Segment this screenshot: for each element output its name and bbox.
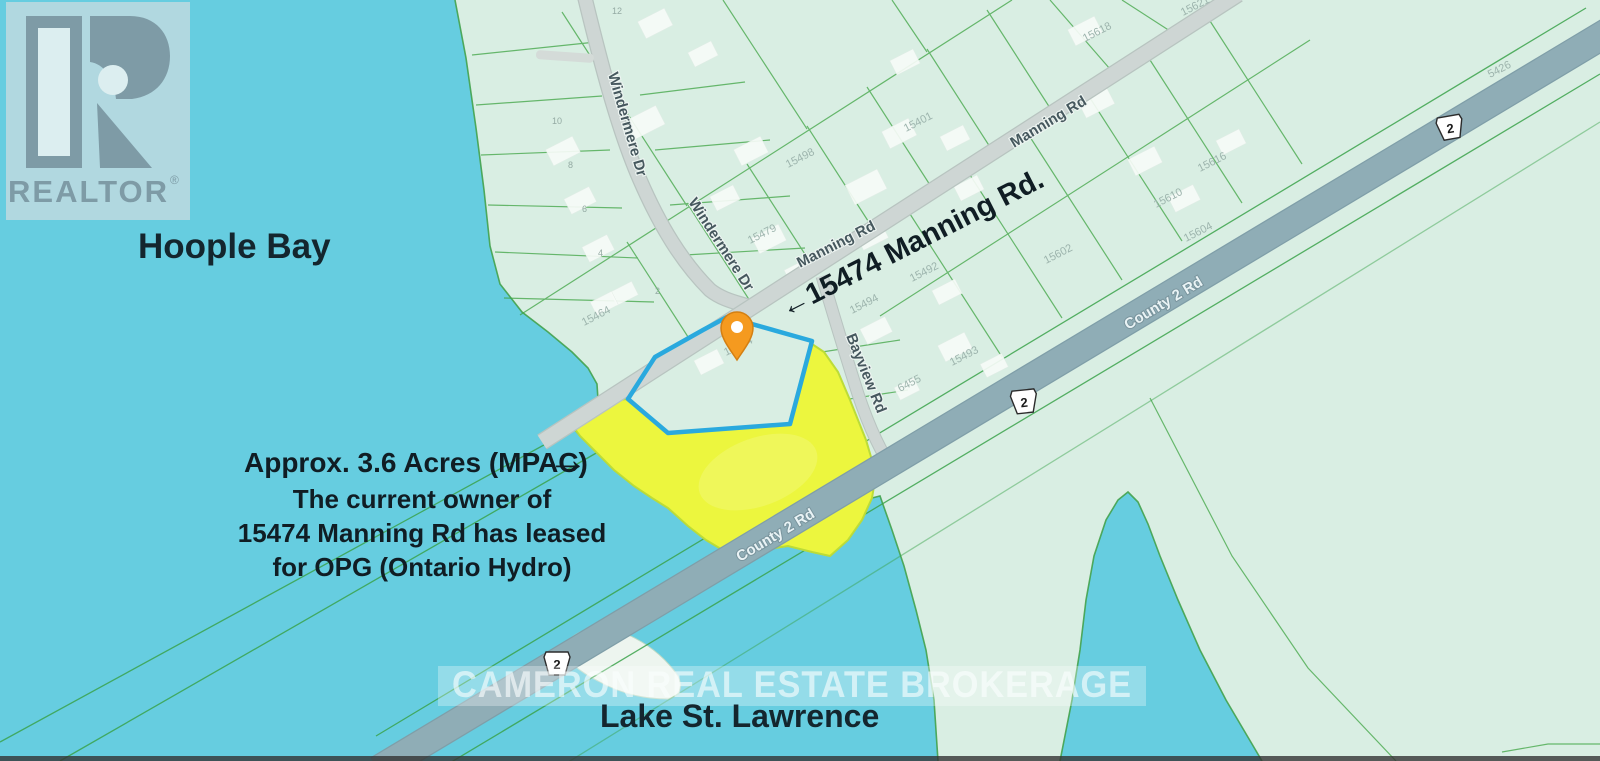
lot-number: 2 [655,286,660,296]
realtor-label: REALTOR [8,174,169,209]
map-canvas: 15621 15618 5426 15401 15498 15616 15610… [0,0,1600,761]
lot-number: 12 [612,6,622,16]
acreage-label: Approx. 3.6 Acres (MPAC) [244,447,588,478]
registered-mark: ® [170,173,179,187]
lake-label: Lake St. Lawrence [600,698,879,734]
svg-text:2: 2 [1020,395,1029,411]
owner-note-line3: for OPG (Ontario Hydro) [273,552,572,582]
owner-note-line2: 15474 Manning Rd has leased [238,518,606,548]
scan-edge-line [0,756,1600,761]
hoople-bay-label: Hoople Bay [138,227,331,266]
owner-note-line1: The current owner of [293,484,552,514]
lot-number: 8 [568,160,573,170]
realtor-logo: REALTOR ® [6,2,190,220]
arrow-right-icon: → [548,438,588,482]
lot-number: 6 [582,204,587,214]
lot-number: 4 [598,248,603,258]
lot-number: 10 [552,116,562,126]
